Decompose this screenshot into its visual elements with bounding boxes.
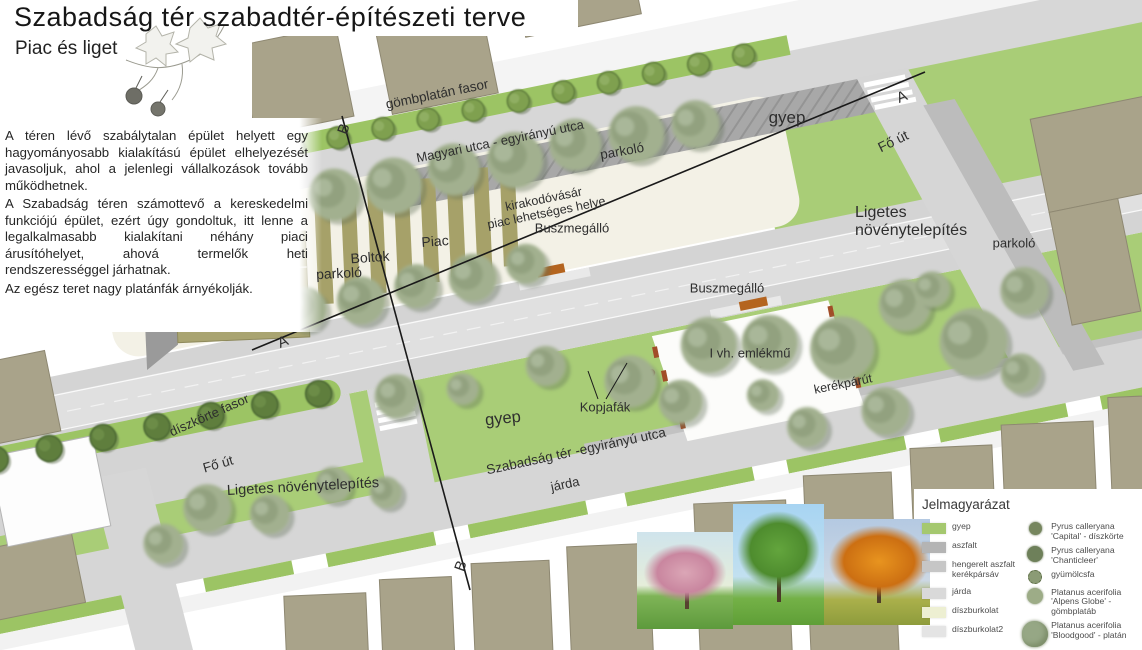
- legend-tree-item: Platanus acerifolia 'Alpens Globe' - göm…: [1025, 588, 1140, 618]
- label-emlekmu: I vh. emlékmű: [710, 346, 791, 361]
- legend-color-swatch: [922, 561, 946, 572]
- legend-tree-item: Platanus acerifolia 'Bloodgood' - platán: [1025, 621, 1140, 647]
- label-ligetes-right: Ligetes növénytelepítés: [855, 204, 967, 240]
- legend-tree-item: Pyrus calleryana 'Capital' - díszkörte: [1025, 522, 1140, 542]
- legend-tree-label: Platanus acerifolia 'Alpens Globe' - göm…: [1051, 588, 1140, 618]
- legend-color-swatch: [922, 607, 946, 618]
- legend-title: Jelmagyarázat: [922, 497, 1140, 512]
- label-gyep-top: gyep: [769, 108, 806, 128]
- page-title: Szabadság tér szabadtér-építészeti terve: [14, 2, 526, 33]
- legend-tree-list: Pyrus calleryana 'Capital' - díszkörtePy…: [1025, 522, 1140, 647]
- label-gyep-bottom: gyep: [484, 408, 522, 431]
- description-paragraph: A Szabadság téren számottevő a kereskede…: [5, 196, 308, 279]
- photo-summer-green-tree: [733, 504, 824, 625]
- legend-surface-item: hengerelt aszfalt kerékpársáv: [922, 560, 1017, 580]
- legend-surface-item: díszburkolat2: [922, 625, 1017, 637]
- building: [379, 577, 461, 650]
- legend-color-swatch: [922, 626, 946, 637]
- fluffy-large-icon: [1022, 621, 1048, 647]
- legend-surface-label: aszfalt: [952, 541, 977, 551]
- label-piac: Piac: [421, 232, 449, 250]
- legend-surface-label: díszburkolat: [952, 606, 998, 616]
- site-plan-page: Szabadság tér szabadtér-építészeti terve…: [0, 0, 1142, 650]
- spiky-small-icon: [1028, 570, 1042, 584]
- legend-tree-label: gyümölcsfa: [1051, 570, 1094, 580]
- legend-surface-label: gyep: [952, 522, 971, 532]
- photo-spring-blossom-tree: [637, 532, 733, 629]
- label-kopjafak: Kopjafák: [580, 400, 631, 415]
- legend-surface-item: járda: [922, 587, 1017, 599]
- legend-tree-label: Pyrus calleryana 'Chanticleer': [1051, 546, 1140, 566]
- circle-light-icon: [1027, 588, 1043, 604]
- legend-surface-item: gyep: [922, 522, 1017, 534]
- page-subtitle: Piac és liget: [15, 38, 117, 60]
- legend-tree-item: Pyrus calleryana 'Chanticleer': [1025, 546, 1140, 566]
- legend-surface-label: járda: [952, 587, 971, 597]
- label-parkolo-left: parkoló: [316, 264, 363, 282]
- legend-color-swatch: [922, 523, 946, 534]
- legend-tree-item: gyümölcsfa: [1025, 570, 1140, 584]
- label-parkolo-right: parkoló: [993, 236, 1036, 251]
- legend-surface-item: díszburkolat: [922, 606, 1017, 618]
- building: [284, 593, 372, 650]
- legend-color-swatch: [922, 542, 946, 553]
- label-buszmegallo-1: Buszmegálló: [535, 221, 609, 236]
- circle-dark-icon: [1027, 546, 1043, 562]
- legend-surface-label: díszburkolat2: [952, 625, 1003, 635]
- legend-surface-list: gyepaszfalthengerelt aszfalt kerékpársáv…: [922, 522, 1017, 647]
- project-description: A téren lévő szabálytalan épület helyett…: [5, 128, 308, 299]
- legend-surface-label: hengerelt aszfalt kerékpársáv: [952, 560, 1017, 580]
- label-buszmegallo-2: Buszmegálló: [690, 281, 764, 296]
- circle-small-dark-icon: [1029, 522, 1042, 535]
- building: [471, 560, 557, 650]
- legend-surface-item: aszfalt: [922, 541, 1017, 553]
- legend-color-swatch: [922, 588, 946, 599]
- photo-autumn-orange-tree: [824, 519, 930, 625]
- legend-tree-label: Platanus acerifolia 'Bloodgood' - platán: [1051, 621, 1140, 641]
- legend-tree-label: Pyrus calleryana 'Capital' - díszkörte: [1051, 522, 1140, 542]
- description-paragraph: Az egész teret nagy platánfák árnyékoljá…: [5, 281, 308, 298]
- description-paragraph: A téren lévő szabálytalan épület helyett…: [5, 128, 308, 194]
- legend: Jelmagyarázat gyepaszfalthengerelt aszfa…: [922, 497, 1140, 647]
